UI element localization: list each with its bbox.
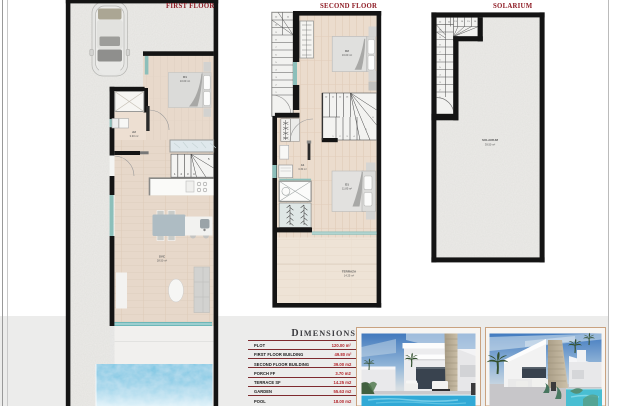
svg-text:D1: D1: [183, 75, 187, 79]
svg-text:TERRAZA: TERRAZA: [342, 270, 357, 274]
svg-text:SOLARIUM: SOLARIUM: [482, 138, 499, 142]
svg-text:D2: D2: [345, 49, 349, 53]
svg-text:10.00 m²: 10.00 m²: [180, 79, 190, 83]
svg-text:3.30 m²: 3.30 m²: [130, 134, 139, 138]
svg-text:11.85 m²: 11.85 m²: [342, 187, 352, 191]
svg-text:A2: A2: [132, 130, 136, 134]
svg-text:16.00 m²: 16.00 m²: [342, 53, 352, 57]
svg-text:3.30 m²: 3.30 m²: [298, 168, 307, 171]
svg-text:D1: D1: [345, 183, 349, 187]
svg-text:A1: A1: [301, 163, 305, 167]
svg-text:39.50 m²: 39.50 m²: [485, 143, 495, 147]
svg-text:14.25 m²: 14.25 m²: [344, 274, 354, 278]
svg-text:SVC: SVC: [159, 255, 166, 259]
svg-text:28.50 m²: 28.50 m²: [157, 259, 167, 263]
